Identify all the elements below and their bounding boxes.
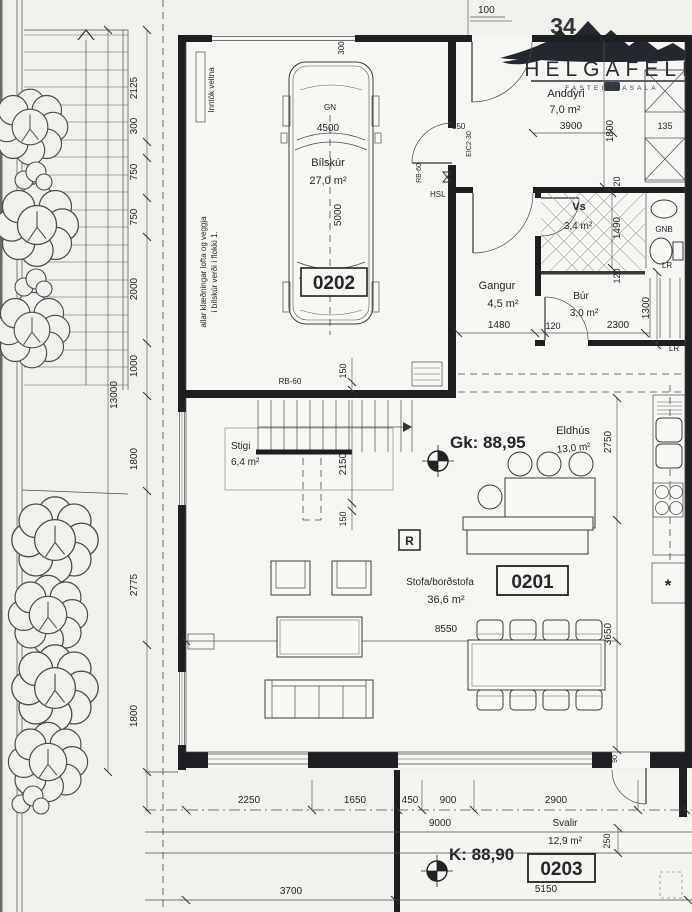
svg-text:Gk: 88,95: Gk: 88,95 <box>450 433 526 452</box>
svg-text:150: 150 <box>338 511 348 526</box>
svg-text:3700: 3700 <box>280 886 303 897</box>
room-area-bur: 3,0 m² <box>570 308 599 319</box>
room-name-bilskur: Bílskúr <box>311 157 345 169</box>
bar-stool-icon <box>569 452 593 476</box>
chair-icon <box>477 690 503 710</box>
svg-text:2900: 2900 <box>545 795 568 806</box>
freezer-symbol: * <box>665 576 672 595</box>
wall-rating-rb60: RB-60 <box>279 377 302 386</box>
door-spec-label: EIC2-30 <box>466 131 473 157</box>
chair-icon <box>543 690 569 710</box>
dim-door-90: 90 <box>612 755 619 763</box>
car-depth-5000: 5000 <box>333 203 344 226</box>
lr-label-2: LR <box>669 344 679 353</box>
dim-left-1800a: 1800 <box>129 447 140 470</box>
svg-text:2250: 2250 <box>238 795 261 806</box>
svg-text:R: R <box>405 534 414 548</box>
room-name-vs: Vs <box>572 201 585 213</box>
svg-text:1480: 1480 <box>488 320 511 331</box>
hsl-label: HSL <box>430 190 446 199</box>
chair-icon <box>477 620 503 640</box>
room-area-bilskur: 27,0 m² <box>309 175 347 187</box>
svg-text:5150: 5150 <box>535 884 558 895</box>
svg-text:1490: 1490 <box>612 216 623 239</box>
armchair-icon <box>271 561 310 595</box>
svg-text:0201: 0201 <box>511 572 554 593</box>
brand-shield-icon <box>604 82 620 91</box>
room-area-stigi: 6,4 m² <box>231 457 260 468</box>
svg-text:2750: 2750 <box>603 430 614 453</box>
dim-closet-135: 135 <box>657 121 672 131</box>
room-area-anddyri: 7,0 m² <box>549 104 581 116</box>
bar-stool-icon <box>478 485 502 509</box>
svg-text:K: 88,90: K: 88,90 <box>449 845 514 864</box>
dining-table-icon <box>468 640 605 690</box>
unit-label-garage: 0202 <box>301 268 367 296</box>
cladding-note-2: í bílskúr verði í flokki 1. <box>210 231 219 312</box>
bar-stool-icon <box>508 452 532 476</box>
chair-icon <box>543 620 569 640</box>
armchair-icon <box>332 561 371 595</box>
dim-top-300: 300 <box>337 41 346 55</box>
sink-icon <box>651 200 677 218</box>
room-name-svalir: Svalir <box>552 818 578 829</box>
dim-top-100: 100 <box>478 5 495 16</box>
svg-text:1650: 1650 <box>344 795 367 806</box>
floor-plan-drawing: 2125 300 750 750 2000 1000 1800 2775 180… <box>0 0 692 912</box>
chair-icon <box>510 690 536 710</box>
svg-text:120: 120 <box>545 321 560 331</box>
chair-icon <box>576 620 602 640</box>
chair-icon <box>576 690 602 710</box>
svg-text:900: 900 <box>440 795 457 806</box>
dim-left-750b: 750 <box>129 208 140 225</box>
room-name-gangur: Gangur <box>479 280 516 292</box>
svg-text:0202: 0202 <box>313 273 355 294</box>
room-name-stigi: Stigi <box>231 441 250 452</box>
sofa-icon <box>265 680 373 718</box>
svg-text:250: 250 <box>602 833 612 848</box>
dim-entry-150: 150 <box>452 122 466 131</box>
wall-rating-rb60-vertical: RB-60 <box>416 163 423 183</box>
room-name-stofa: Stofa/borðstofa <box>406 576 474 588</box>
room-name-anddyri: Anddyri <box>547 88 584 100</box>
car-length-4500: 4500 <box>317 123 340 134</box>
svg-text:450: 450 <box>402 795 419 806</box>
gnb-label: GNB <box>655 225 672 234</box>
room-area-gangur: 4,5 m² <box>487 298 519 310</box>
cladding-note-1: allar klæðningar lofta og veggja <box>199 216 208 328</box>
unit-label-main: 0201 <box>497 566 568 595</box>
brand-name: HELGAFELL <box>524 58 692 81</box>
coffee-table-icon <box>277 617 362 657</box>
svg-text:1800: 1800 <box>605 119 616 142</box>
dim-left-2000: 2000 <box>129 277 140 300</box>
dim-left-1800b: 1800 <box>129 704 140 727</box>
car-code: GN <box>324 103 336 112</box>
room-area-vs: 3,4 m² <box>564 221 593 232</box>
svg-text:120: 120 <box>612 268 622 283</box>
dim-left-750a: 750 <box>129 163 140 180</box>
dim-left-2775: 2775 <box>129 573 140 596</box>
svg-text:8550: 8550 <box>435 624 458 635</box>
room-name-eldhus: Eldhús <box>556 425 590 437</box>
room-area-stofa: 36,6 m² <box>427 594 465 606</box>
utilities-note: Inntök veitna <box>207 67 216 113</box>
dim-left-1000: 1000 <box>129 354 140 377</box>
dim-left-300: 300 <box>129 117 140 134</box>
svg-text:0203: 0203 <box>540 859 582 880</box>
svg-text:2150: 2150 <box>338 452 349 475</box>
lr-label-1: LR <box>662 261 672 270</box>
dim-left-2125: 2125 <box>129 76 140 99</box>
chair-icon <box>510 620 536 640</box>
svg-text:120: 120 <box>612 176 622 191</box>
room-name-bur: Búr <box>573 291 589 302</box>
floor-plan-page: 2125 300 750 750 2000 1000 1800 2775 180… <box>0 0 692 912</box>
svg-text:150: 150 <box>338 363 348 378</box>
svg-text:2300: 2300 <box>607 320 630 331</box>
dim-left-total-13000: 13000 <box>109 381 120 409</box>
room-area-svalir: 12,9 m² <box>548 836 583 847</box>
bar-stool-icon <box>537 452 561 476</box>
unit-label-balcony: 0203 <box>528 854 595 882</box>
building-floor <box>178 35 692 768</box>
smoke-detector: R <box>399 530 420 550</box>
svg-text:9000: 9000 <box>429 818 452 829</box>
svg-text:3900: 3900 <box>560 121 583 132</box>
